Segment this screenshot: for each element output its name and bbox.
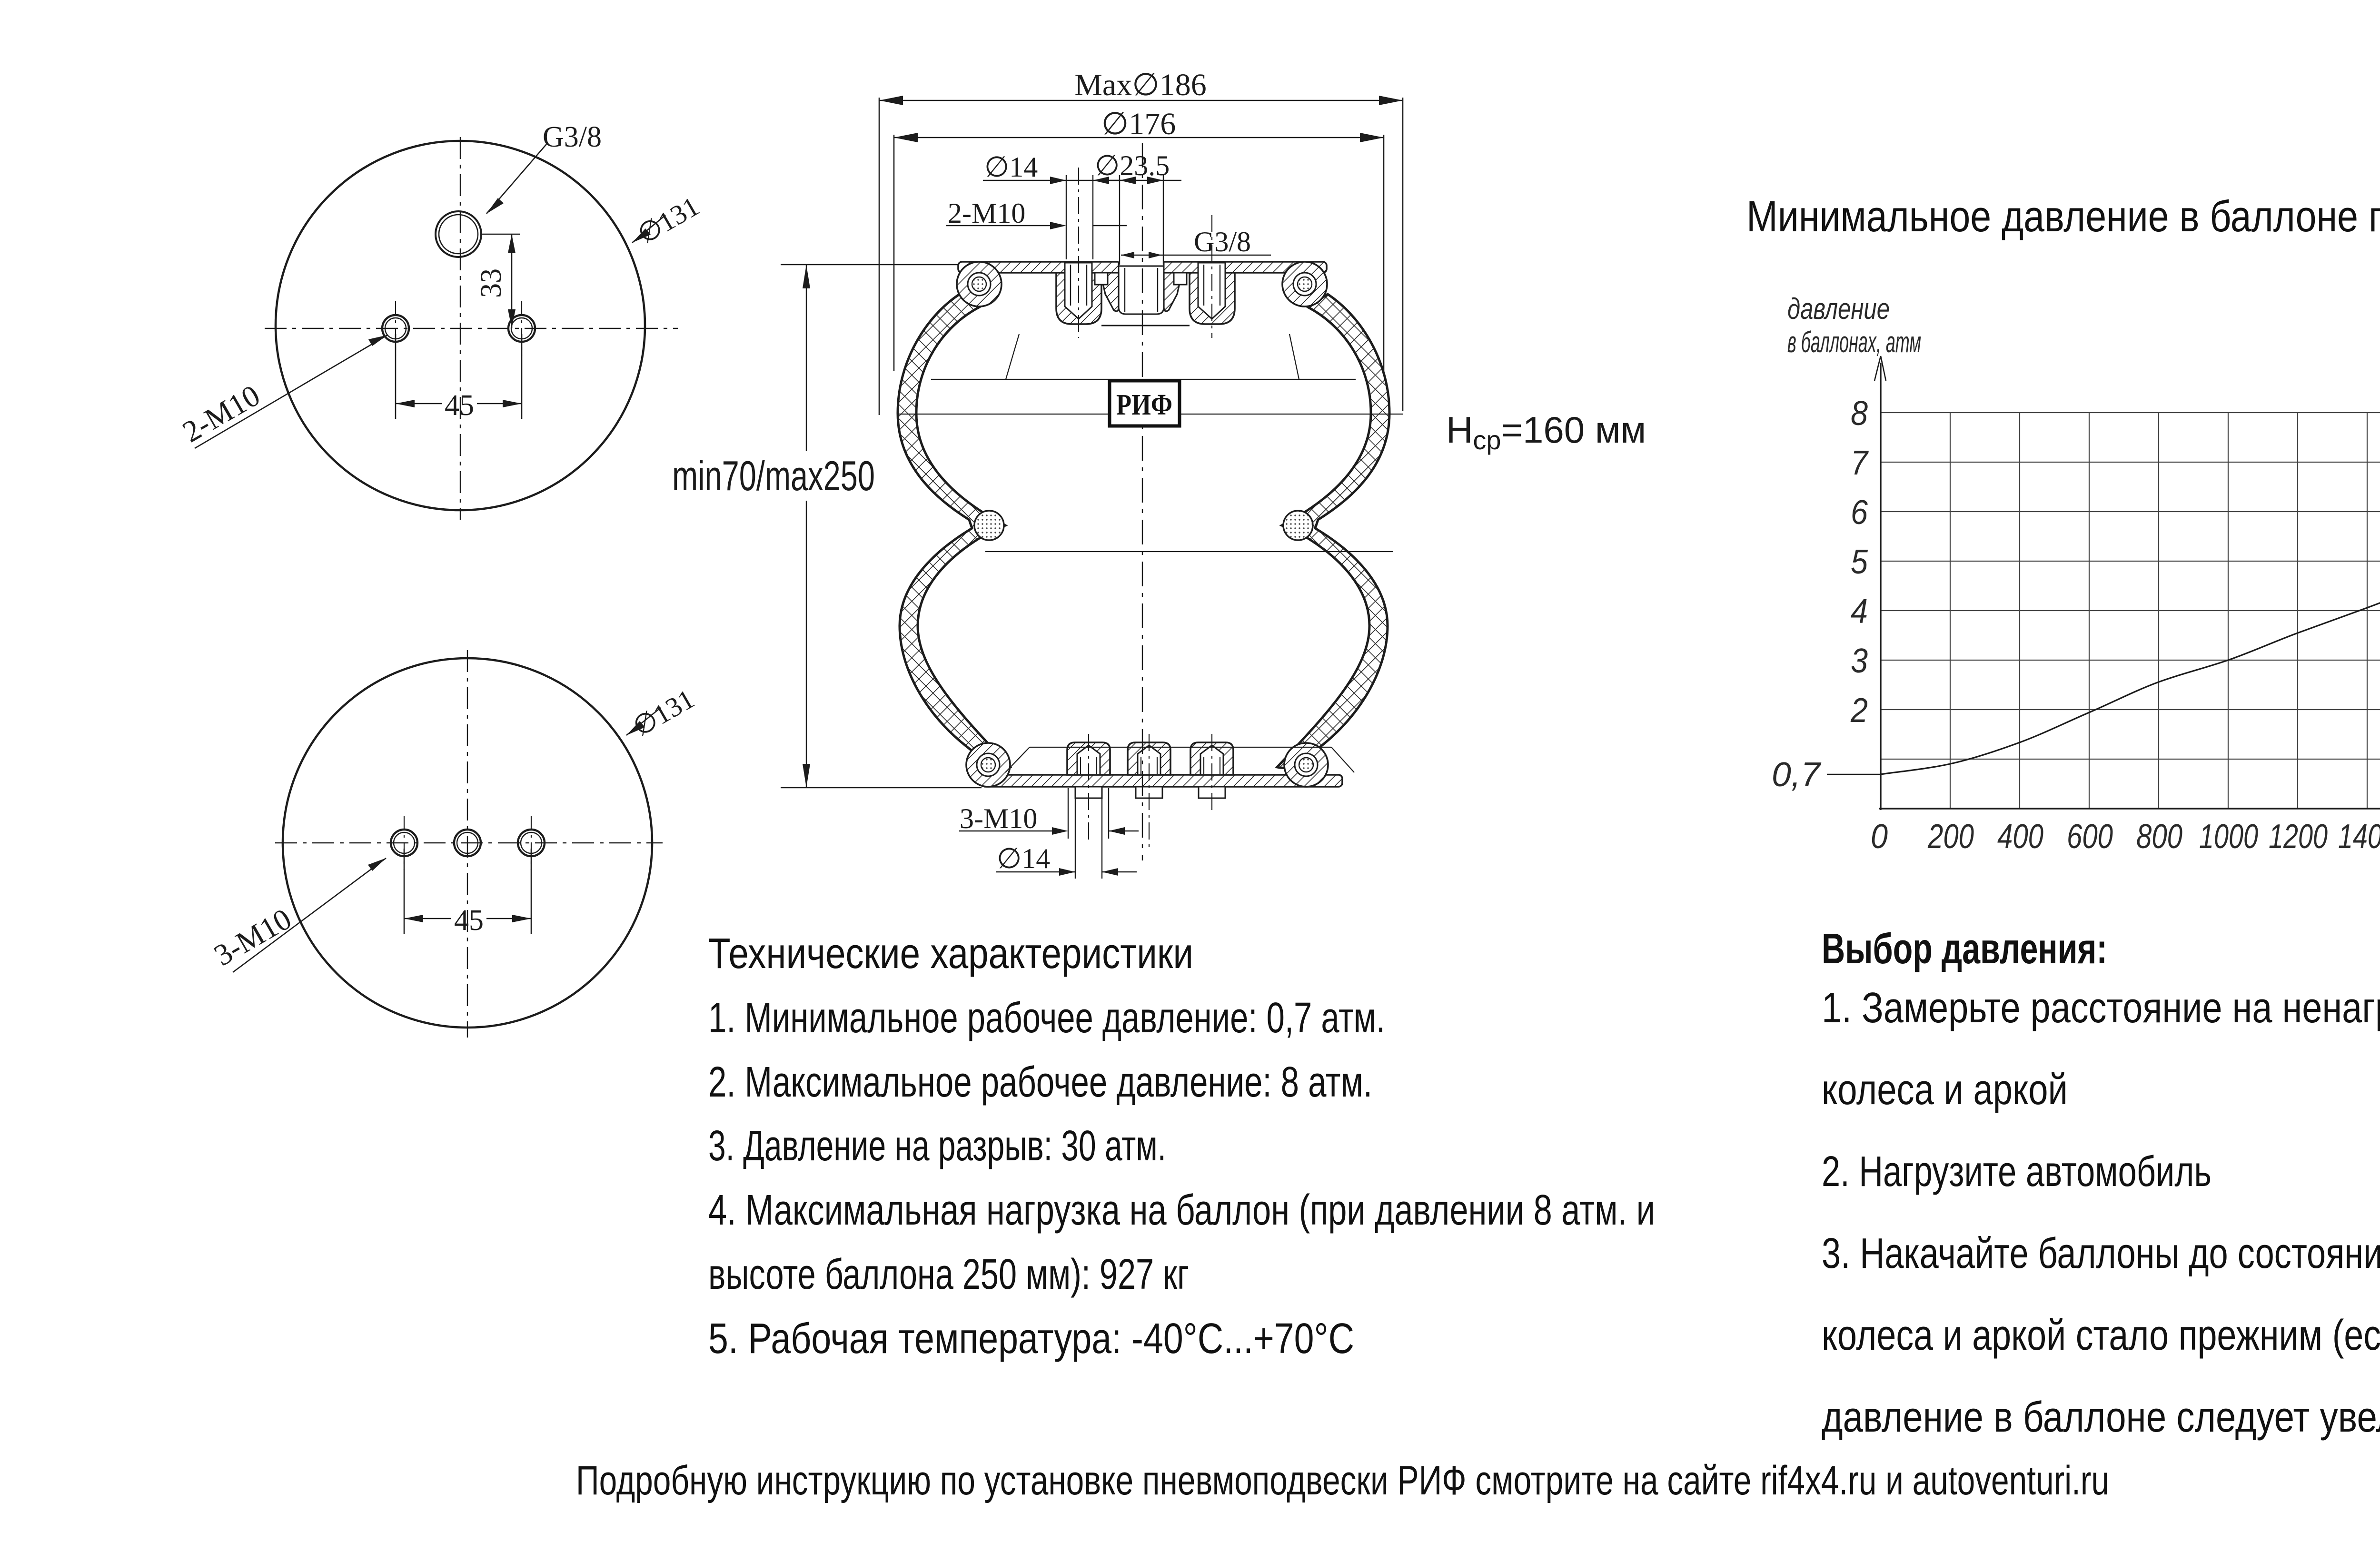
svg-text:45: 45 [445,389,474,422]
svg-text:Max∅186: Max∅186 [1074,68,1206,102]
svg-text:0,7: 0,7 [1772,756,1822,794]
svg-text:7: 7 [1851,444,1869,482]
svg-text:давление: давление [1787,293,1890,326]
svg-text:1200: 1200 [2269,818,2328,856]
svg-text:3. Давление на разрыв: 30 атм.: 3. Давление на разрыв: 30 атм. [708,1122,1166,1170]
svg-text:800: 800 [2136,818,2182,856]
svg-text:1. Замерьте расстояние на нена: 1. Замерьте расстояние на ненагруженном … [1822,984,2380,1032]
svg-text:высоте баллона 250 мм): 927 кг: высоте баллона 250 мм): 927 кг [708,1251,1189,1298]
svg-text:1. Минимальное рабочее давлени: 1. Минимальное рабочее давление: 0,7 атм… [708,994,1385,1042]
svg-text:400: 400 [1997,818,2043,856]
svg-text:∅14: ∅14 [984,151,1038,183]
svg-text:33: 33 [475,268,507,298]
svg-text:3: 3 [1851,642,1868,680]
svg-text:Минимальное давление в баллоне: Минимальное давление в баллоне при нагру… [1746,192,2380,241]
svg-text:6: 6 [1851,494,1868,532]
svg-text:3. Накачайте баллоны до состоя: 3. Накачайте баллоны до состояния, чтобы… [1822,1230,2380,1277]
svg-text:5. Рабочая температура: -40°С.: 5. Рабочая температура: -40°С...+70°С [708,1315,1354,1363]
svg-text:3-M10: 3-M10 [960,803,1037,834]
svg-text:2. Максимальное рабочее давлен: 2. Максимальное рабочее давление: 8 атм. [708,1058,1372,1106]
svg-text:1400: 1400 [2338,818,2380,856]
svg-text:min70/max250: min70/max250 [672,452,875,499]
svg-text:∅14: ∅14 [997,843,1050,874]
svg-text:2-M10: 2-M10 [948,198,1025,229]
svg-text:4: 4 [1851,593,1868,631]
svg-text:Выбор давления:: Выбор давления: [1822,925,2107,973]
svg-text:в баллонах, атм: в баллонах, атм [1787,326,1921,359]
svg-text:5: 5 [1851,543,1868,581]
svg-text:2: 2 [1850,692,1868,730]
svg-text:G3/8: G3/8 [1194,226,1251,257]
svg-text:600: 600 [2067,818,2113,856]
svg-text:∅23.5: ∅23.5 [1095,150,1170,181]
svg-text:8: 8 [1851,395,1868,433]
svg-text:∅176: ∅176 [1101,107,1176,141]
svg-text:давление в баллоне следует уве: давление в баллоне следует увеличить) [1822,1394,2380,1441]
svg-text:Подробную инструкцию по устано: Подробную инструкцию по установке пневмо… [576,1458,2109,1503]
svg-text:РИФ: РИФ [1116,389,1172,421]
svg-text:45: 45 [454,904,484,937]
svg-text:200: 200 [1927,818,1974,856]
svg-text:Технические характеристики: Технические характеристики [708,930,1193,978]
svg-text:G3/8: G3/8 [543,121,602,153]
svg-text:колеса и аркой стало прежним (: колеса и аркой стало прежним (если Вы хо… [1822,1312,2380,1359]
svg-text:2. Нагрузите автомобиль: 2. Нагрузите автомобиль [1822,1148,2211,1196]
svg-text:1000: 1000 [2199,818,2258,856]
svg-text:колеса и аркой: колеса и аркой [1822,1066,2068,1114]
svg-text:4. Максимальная нагрузка на ба: 4. Максимальная нагрузка на баллон (при … [708,1186,1655,1234]
svg-text:0: 0 [1871,818,1888,856]
